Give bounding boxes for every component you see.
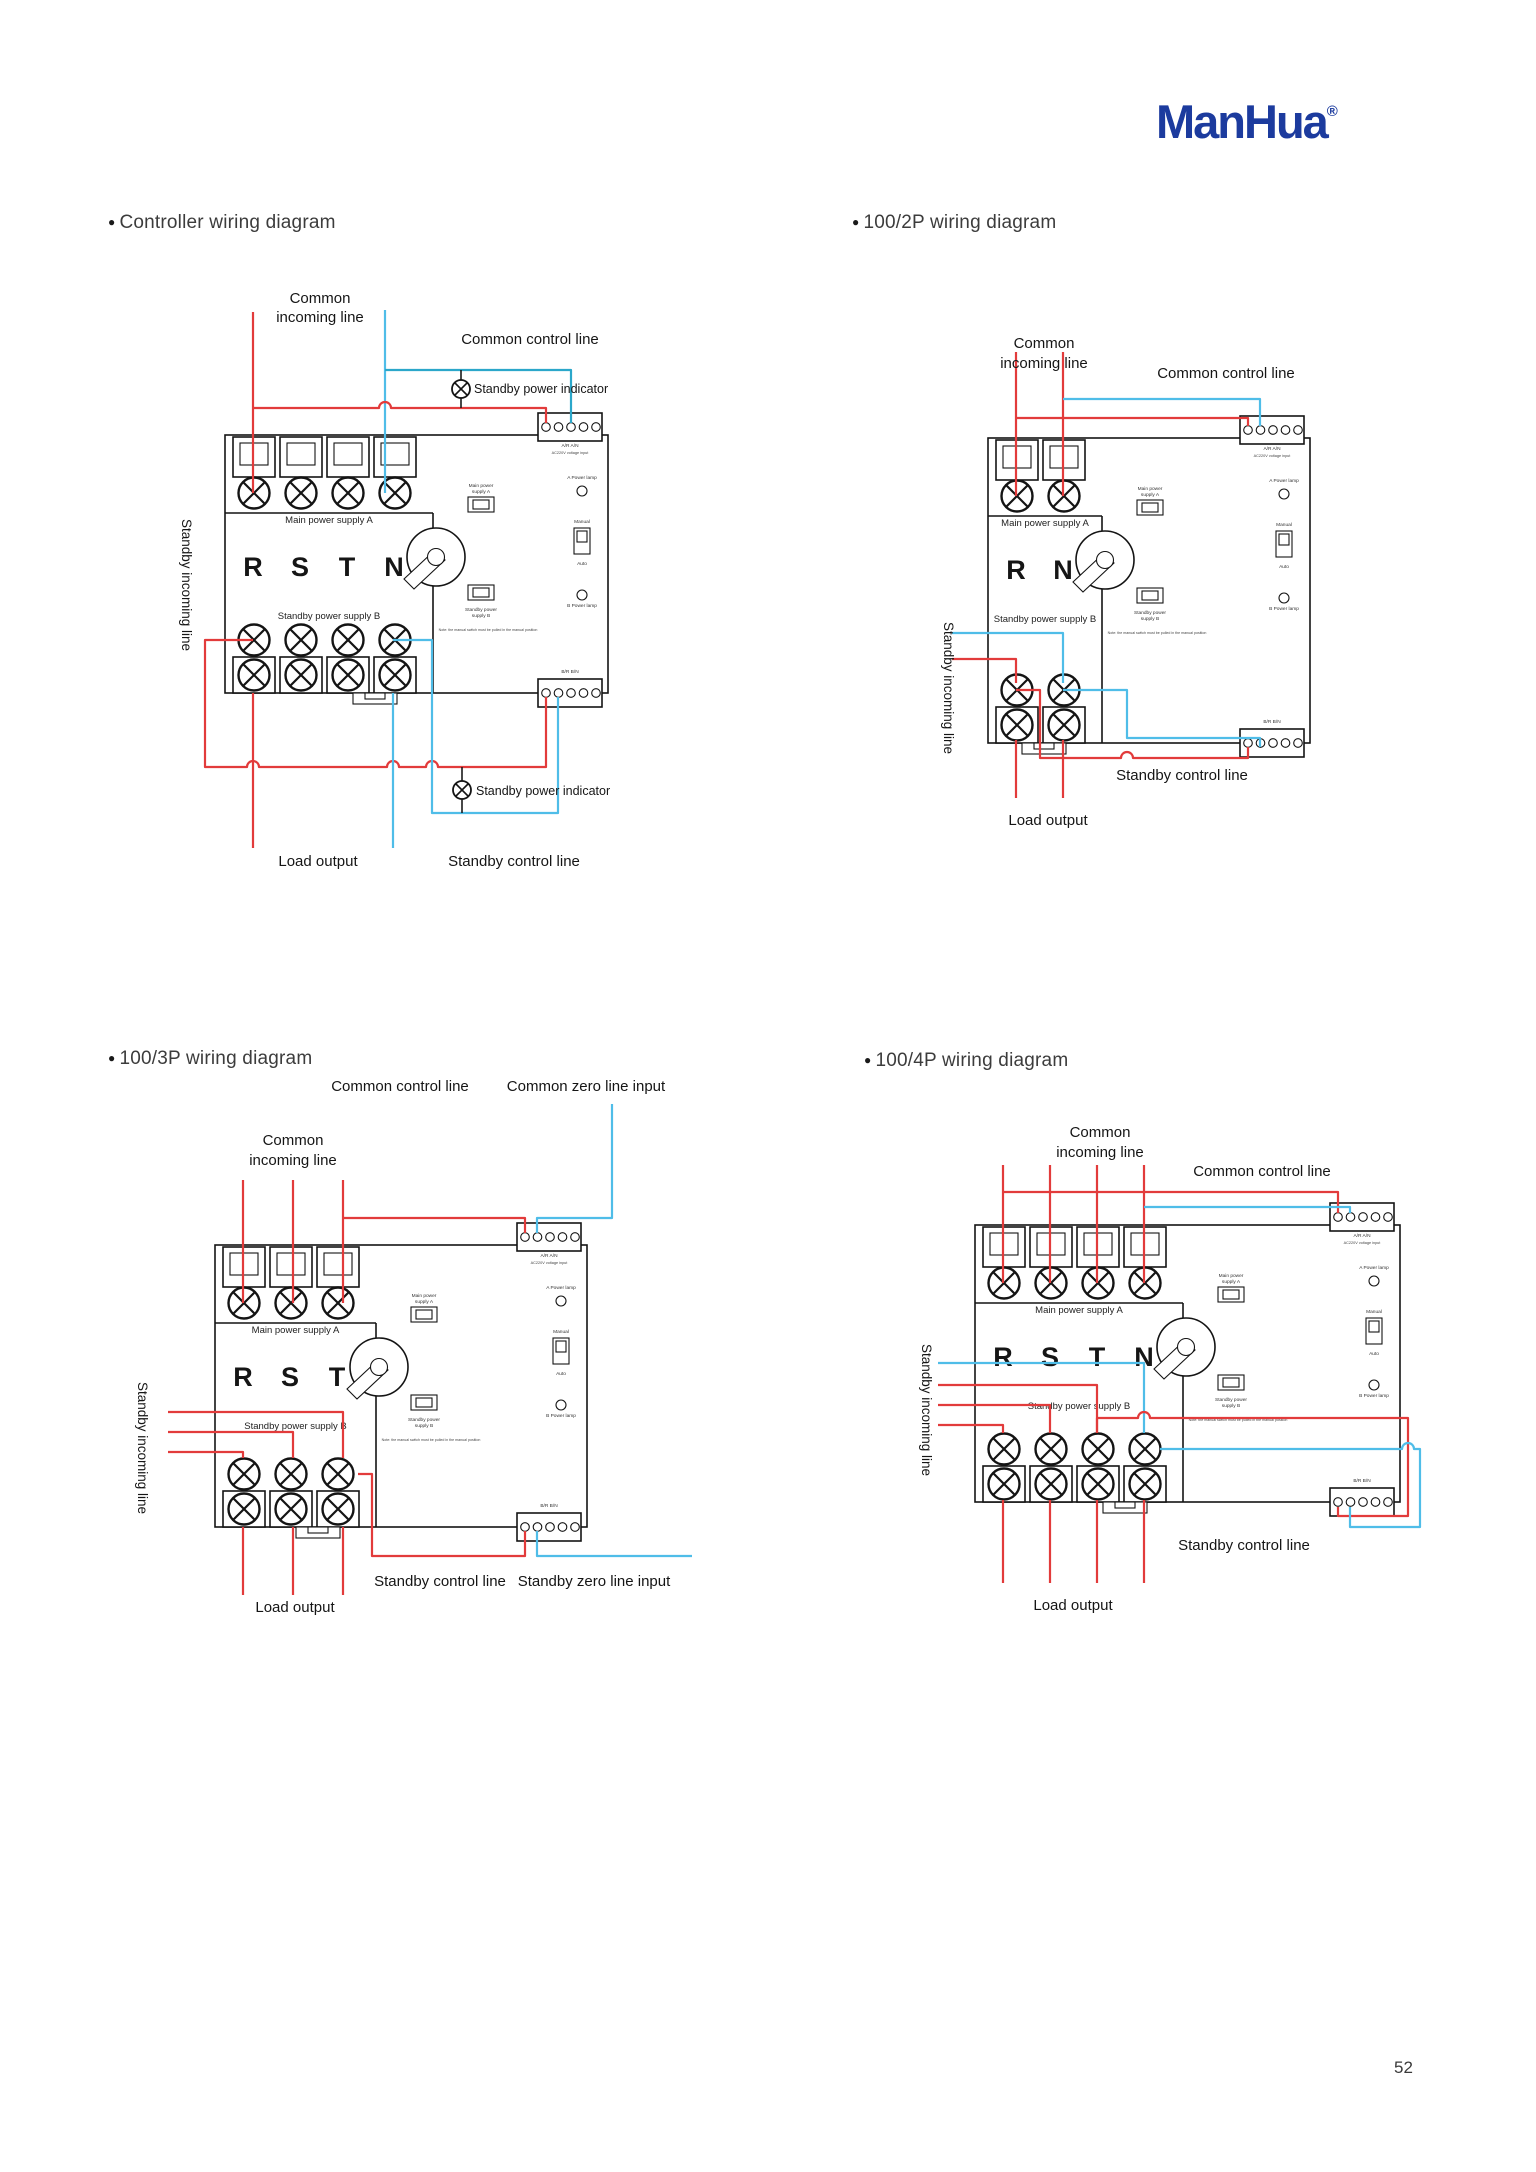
label-manual: Manual: [574, 519, 590, 525]
terminal-hole-icon: [567, 689, 576, 698]
label-common-incoming: Common: [290, 290, 351, 307]
terminal-cavity: [287, 443, 315, 465]
label-main-supply: Main power supply A: [1001, 518, 1089, 529]
terminal-hole-icon: [1359, 1213, 1368, 1222]
label-standby-indicator-top: Standby power indicator: [474, 382, 608, 396]
label-top-terminals-sub: AC220V voltage input: [552, 451, 590, 455]
label-common-control: Common control line: [461, 331, 599, 348]
din-clip-inner: [1034, 743, 1054, 749]
phase-letter: S: [291, 552, 309, 582]
label-load-output: Load output: [1008, 812, 1088, 829]
din-clip-inner: [308, 1527, 328, 1533]
label-bottom-terminals: B/R B/N: [1263, 719, 1281, 725]
wire-common-control-red: [253, 402, 546, 423]
label-bottom-terminals: B/R B/N: [1353, 1478, 1371, 1484]
terminal-hole-icon: [1269, 739, 1278, 748]
phase-letter: S: [281, 1362, 299, 1392]
label-standby-zero: Standby zero line input: [518, 1573, 671, 1590]
terminal-hole-icon: [542, 689, 551, 698]
label-top-terminals-sub: AC220V voltage input: [1254, 454, 1292, 458]
terminal-hole-icon: [1281, 426, 1290, 435]
terminal-hole-icon: [1281, 739, 1290, 748]
terminal-hole-icon: [1269, 426, 1278, 435]
phase-letter: R: [993, 1342, 1013, 1372]
diagram-4p: A/R A/NAC220V voltage inputB/R B/NMain p…: [919, 1124, 1420, 1614]
label-auto: Auto: [1369, 1351, 1379, 1357]
label-standby-indicator-bottom: Standby power indicator: [476, 784, 610, 798]
terminal-cavity: [324, 1253, 352, 1275]
phase-letter: T: [1089, 1342, 1106, 1372]
label-ind-main: Main power: [412, 1293, 437, 1299]
label-common-incoming-2: incoming line: [276, 309, 364, 326]
terminal-hole-icon: [558, 1233, 567, 1242]
label-common-control: Common control line: [1157, 365, 1295, 382]
label-ind-standby: Standby power: [1215, 1397, 1247, 1403]
label-load-output: Load output: [255, 1599, 335, 1616]
indicator-window-inner: [416, 1398, 432, 1407]
indicator-window-inner: [1142, 503, 1158, 512]
terminal-hole-icon: [1294, 426, 1303, 435]
terminal-hole-icon: [1384, 1498, 1393, 1507]
label-main-supply: Main power supply A: [1035, 1305, 1123, 1316]
label-common-incoming: Common: [1014, 335, 1075, 352]
phase-letter: T: [339, 552, 356, 582]
label-top-terminals: A/R A/N: [1353, 1233, 1371, 1239]
label-b-power-lamp: B Power lamp: [1359, 1393, 1389, 1399]
terminal-hole-icon: [571, 1523, 580, 1532]
label-standby-control: Standby control line: [448, 853, 580, 870]
manual-auto-knob: [556, 1341, 566, 1352]
wire-common-control-red: [343, 1218, 525, 1233]
diagram-3p: A/R A/NAC220V voltage inputB/R B/NMain p…: [135, 1078, 692, 1616]
label-standby-supply: Standby power supply B: [244, 1421, 346, 1432]
label-ind-main: supply A: [1141, 492, 1160, 498]
terminal-hole-icon: [1244, 739, 1253, 748]
ats-device-2p: A/R A/NAC220V voltage inputB/R B/NMain p…: [988, 416, 1310, 757]
wire-common-control-red: [1016, 418, 1248, 426]
label-common-incoming: Common: [263, 1132, 324, 1149]
label-standby-supply: Standby power supply B: [1028, 1401, 1130, 1412]
label-auto: Auto: [556, 1371, 566, 1377]
terminal-hole-icon: [1294, 739, 1303, 748]
label-standby-incoming: Standby incoming line: [919, 1344, 934, 1476]
terminal-cavity: [334, 443, 362, 465]
din-clip-inner: [1115, 1502, 1135, 1508]
wire-common-control-blue: [1144, 1207, 1350, 1213]
ats-device-controller: A/R A/NAC220V voltage inputB/R B/NMain p…: [225, 413, 608, 707]
terminal-hole-icon: [546, 1233, 555, 1242]
a-power-lamp-icon: [577, 486, 587, 496]
label-common-incoming-2: incoming line: [1000, 355, 1088, 372]
terminal-hole-icon: [579, 423, 588, 432]
label-ind-standby: supply B: [1141, 616, 1159, 622]
terminal-hole-icon: [579, 689, 588, 698]
terminal-hole-icon: [558, 1523, 567, 1532]
label-ind-standby: Standby power: [408, 1417, 440, 1423]
indicator-window-inner: [1223, 1378, 1239, 1387]
phase-letter: N: [384, 552, 404, 582]
label-standby-control: Standby control line: [374, 1573, 506, 1590]
label-top-terminals-sub: AC220V voltage input: [1344, 1241, 1382, 1245]
label-common-incoming-2: incoming line: [249, 1152, 337, 1169]
label-ind-main: Main power: [1138, 486, 1163, 492]
label-bottom-terminals: B/R B/N: [561, 669, 579, 675]
label-ind-main: supply A: [415, 1299, 434, 1305]
b-power-lamp-icon: [1279, 593, 1289, 603]
phase-letter: R: [243, 552, 263, 582]
label-common-incoming-2: incoming line: [1056, 1144, 1144, 1161]
manual-page: ManHua® ●Controller wiring diagram ●100/…: [0, 0, 1536, 2172]
phase-letter: R: [233, 1362, 253, 1392]
rotary-switch-hub: [428, 549, 445, 566]
label-a-power-lamp: A Power lamp: [1269, 478, 1299, 484]
terminal-hole-icon: [533, 1233, 542, 1242]
label-ind-main: Main power: [469, 483, 494, 489]
wire-common-control-blue: [1063, 399, 1260, 426]
phase-letter: N: [1053, 555, 1073, 585]
indicator-window-inner: [1223, 1290, 1239, 1299]
label-main-supply: Main power supply A: [285, 515, 373, 526]
terminal-hole-icon: [1334, 1213, 1343, 1222]
label-b-power-lamp: B Power lamp: [546, 1413, 576, 1419]
din-clip-inner: [365, 693, 385, 699]
wire-common-zero-blue: [537, 1104, 612, 1233]
manual-auto-knob: [1279, 534, 1289, 545]
label-standby-incoming: Standby incoming line: [941, 622, 956, 754]
indicator-window-inner: [1142, 591, 1158, 600]
indicator-window-inner: [416, 1310, 432, 1319]
label-common-control: Common control line: [1193, 1163, 1331, 1180]
terminal-hole-icon: [1334, 1498, 1343, 1507]
terminal-hole-icon: [1256, 426, 1265, 435]
label-b-power-lamp: B Power lamp: [1269, 606, 1299, 612]
terminal-hole-icon: [1359, 1498, 1368, 1507]
label-manual: Manual: [1366, 1309, 1382, 1315]
label-a-power-lamp: A Power lamp: [546, 1285, 576, 1291]
terminal-hole-icon: [1371, 1498, 1380, 1507]
label-ind-main: supply A: [1222, 1279, 1241, 1285]
b-power-lamp-icon: [1369, 1380, 1379, 1390]
label-note: Note: the manual switch must be pulled i…: [1108, 631, 1207, 635]
indicator-window-inner: [473, 588, 489, 597]
terminal-hole-icon: [521, 1233, 530, 1242]
label-auto: Auto: [1279, 564, 1289, 570]
terminal-hole-icon: [1346, 1213, 1355, 1222]
terminal-hole-icon: [521, 1523, 530, 1532]
label-top-terminals: A/R A/N: [540, 1253, 558, 1259]
label-ind-standby: Standby power: [465, 607, 497, 613]
label-standby-incoming: Standby incoming line: [179, 519, 194, 651]
label-manual: Manual: [1276, 522, 1292, 528]
label-standby-control: Standby control line: [1116, 767, 1248, 784]
label-standby-incoming: Standby incoming line: [135, 1382, 150, 1514]
label-auto: Auto: [577, 561, 587, 567]
label-note: Note: the manual switch must be pulled i…: [439, 628, 538, 632]
label-top-terminals: A/R A/N: [1263, 446, 1281, 452]
label-load-output: Load output: [1033, 1597, 1113, 1614]
label-ind-standby: Standby power: [1134, 610, 1166, 616]
label-standby-supply: Standby power supply B: [994, 614, 1096, 625]
b-power-lamp-icon: [577, 590, 587, 600]
label-ind-main: supply A: [472, 489, 491, 495]
manual-auto-knob: [1369, 1321, 1379, 1332]
label-a-power-lamp: A Power lamp: [567, 475, 597, 481]
label-bottom-terminals: B/R B/N: [540, 1503, 558, 1509]
page-number: 52: [1394, 2058, 1413, 2078]
label-ind-standby: supply B: [472, 613, 490, 619]
label-ind-main: Main power: [1219, 1273, 1244, 1279]
diagram-canvas: A/R A/NAC220V voltage inputB/R B/NMain p…: [0, 0, 1536, 2172]
label-load-output: Load output: [278, 853, 358, 870]
label-top-terminals-sub: AC220V voltage input: [531, 1261, 569, 1265]
b-power-lamp-icon: [556, 1400, 566, 1410]
a-power-lamp-icon: [1369, 1276, 1379, 1286]
terminal-cavity: [277, 1253, 305, 1275]
phase-letter: S: [1041, 1342, 1059, 1372]
label-ind-standby: supply B: [415, 1423, 433, 1429]
terminal-hole-icon: [571, 1233, 580, 1242]
a-power-lamp-icon: [556, 1296, 566, 1306]
label-a-power-lamp: A Power lamp: [1359, 1265, 1389, 1271]
terminal-hole-icon: [546, 1523, 555, 1532]
label-common-zero: Common zero line input: [507, 1078, 666, 1095]
rotary-switch-hub: [1097, 552, 1114, 569]
label-main-supply: Main power supply A: [252, 1325, 340, 1336]
label-b-power-lamp: B Power lamp: [567, 603, 597, 609]
phase-letter: R: [1006, 555, 1026, 585]
terminal-hole-icon: [1384, 1213, 1393, 1222]
terminal-hole-icon: [1244, 426, 1253, 435]
rotary-switch-hub: [371, 1359, 388, 1376]
manual-auto-knob: [577, 531, 587, 542]
indicator-window-inner: [473, 500, 489, 509]
terminal-hole-icon: [533, 1523, 542, 1532]
label-note: Note: the manual switch must be pulled i…: [382, 1438, 481, 1442]
terminal-hole-icon: [554, 423, 563, 432]
label-common-control: Common control line: [331, 1078, 469, 1095]
label-common-incoming: Common: [1070, 1124, 1131, 1141]
terminal-hole-icon: [592, 423, 601, 432]
a-power-lamp-icon: [1279, 489, 1289, 499]
label-manual: Manual: [553, 1329, 569, 1335]
ats-device-3p: A/R A/NAC220V voltage inputB/R B/NMain p…: [215, 1223, 587, 1541]
terminal-hole-icon: [1346, 1498, 1355, 1507]
diagram-controller: A/R A/NAC220V voltage inputB/R B/NMain p…: [179, 290, 610, 870]
ats-device-4p: A/R A/NAC220V voltage inputB/R B/NMain p…: [975, 1203, 1400, 1516]
terminal-hole-icon: [1371, 1213, 1380, 1222]
label-standby-supply: Standby power supply B: [278, 611, 380, 622]
terminal-hole-icon: [567, 423, 576, 432]
wire-common-control-red: [1003, 1192, 1338, 1213]
rotary-switch-hub: [1178, 1339, 1195, 1356]
terminal-hole-icon: [592, 689, 601, 698]
diagram-2p: A/R A/NAC220V voltage inputB/R B/NMain p…: [941, 335, 1310, 829]
label-top-terminals: A/R A/N: [561, 443, 579, 449]
terminal-hole-icon: [554, 689, 563, 698]
label-ind-standby: supply B: [1222, 1403, 1240, 1409]
terminal-hole-icon: [542, 423, 551, 432]
label-standby-control: Standby control line: [1178, 1537, 1310, 1554]
phase-letter: T: [329, 1362, 346, 1392]
